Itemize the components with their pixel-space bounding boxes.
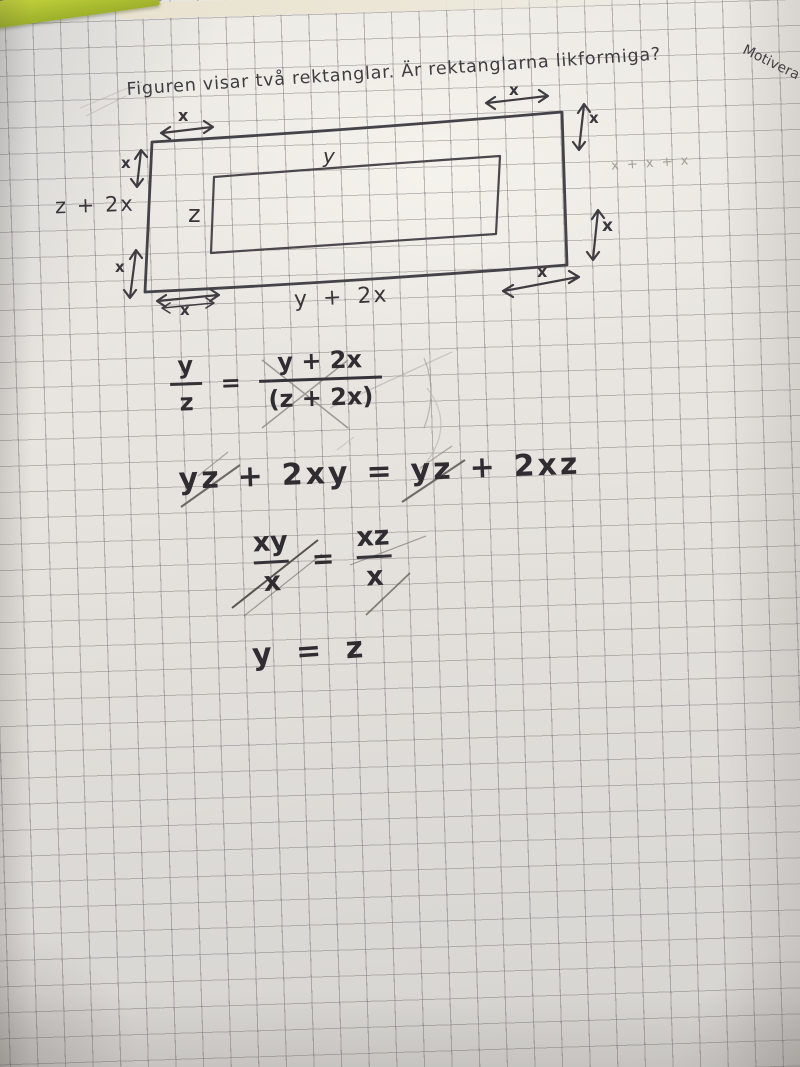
fraction-numerator: xz bbox=[346, 520, 399, 557]
fraction-rhs: xz x bbox=[346, 520, 401, 594]
equals-sign: = bbox=[311, 543, 335, 575]
equation-proportion: y z = y + 2x (z + 2x) bbox=[168, 345, 383, 417]
fraction-numerator: y bbox=[168, 351, 203, 383]
term-2xy: 2xy bbox=[281, 455, 351, 493]
x-label-right-mid: x bbox=[602, 216, 613, 236]
plus-sign: + bbox=[237, 459, 266, 495]
term-yz-left: yz bbox=[178, 460, 222, 497]
inner-width-label: y bbox=[323, 144, 335, 168]
fraction-lhs: xy x bbox=[243, 525, 300, 599]
x-label-top-right: x bbox=[509, 81, 519, 99]
x-label-left-bottom: x bbox=[115, 258, 125, 276]
fraction-numerator: xy bbox=[243, 525, 298, 562]
fraction-lhs: y z bbox=[168, 351, 204, 417]
x-label-left-top: x bbox=[121, 154, 131, 172]
plus-sign: + bbox=[469, 450, 498, 486]
term-2xz: 2xz bbox=[513, 447, 581, 485]
notebook-photo: Figuren visar två rektanglar. Är rektang… bbox=[0, 0, 800, 1067]
equals-sign: = bbox=[220, 368, 241, 397]
outer-height-label: z + 2x bbox=[55, 192, 136, 219]
fraction-denominator: x bbox=[254, 560, 291, 599]
x-label-top-left: x bbox=[178, 106, 188, 125]
outer-width-label: y + 2x bbox=[293, 283, 389, 313]
fraction-denominator: (z + 2x) bbox=[259, 376, 383, 414]
x-label-right-top: x bbox=[589, 109, 599, 127]
fraction-denominator: x bbox=[356, 554, 393, 593]
x-label-bottom-right: x bbox=[537, 262, 547, 281]
fraction-numerator: y + 2x bbox=[268, 345, 372, 380]
term-yz-right: yz bbox=[410, 451, 454, 488]
x-label-bottom-left: x bbox=[180, 301, 190, 319]
inner-height-label: z bbox=[188, 200, 201, 228]
fraction-rhs: y + 2x (z + 2x) bbox=[258, 345, 383, 414]
equation-divide-by-x: xy x = xz x bbox=[243, 520, 401, 599]
equals-sign: = bbox=[366, 454, 395, 490]
fraction-denominator: z bbox=[170, 382, 203, 417]
